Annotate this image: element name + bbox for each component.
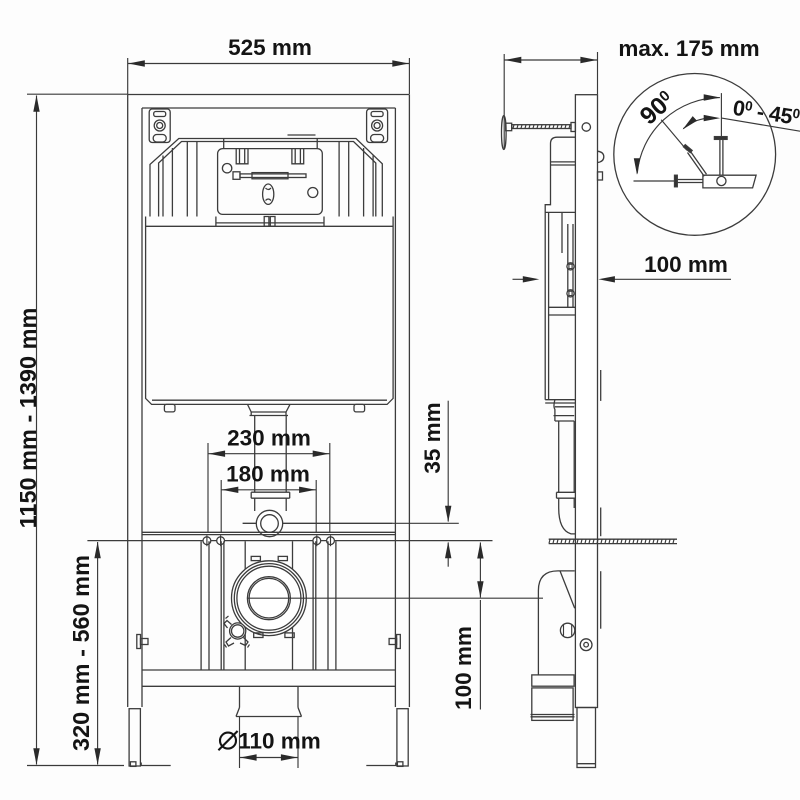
svg-text:110 mm: 110 mm — [238, 729, 321, 754]
svg-text:35 mm: 35 mm — [420, 402, 445, 473]
svg-text:100 mm: 100 mm — [451, 626, 476, 710]
svg-text:100 mm: 100 mm — [644, 252, 728, 277]
svg-text:320 mm - 560 mm: 320 mm - 560 mm — [68, 555, 94, 751]
svg-text:180 mm: 180 mm — [226, 462, 310, 487]
svg-text:1150 mm - 1390 mm: 1150 mm - 1390 mm — [15, 308, 41, 529]
svg-text:230 mm: 230 mm — [227, 426, 311, 451]
svg-text:525 mm: 525 mm — [228, 35, 312, 60]
svg-text:max. 175 mm: max. 175 mm — [618, 36, 759, 61]
